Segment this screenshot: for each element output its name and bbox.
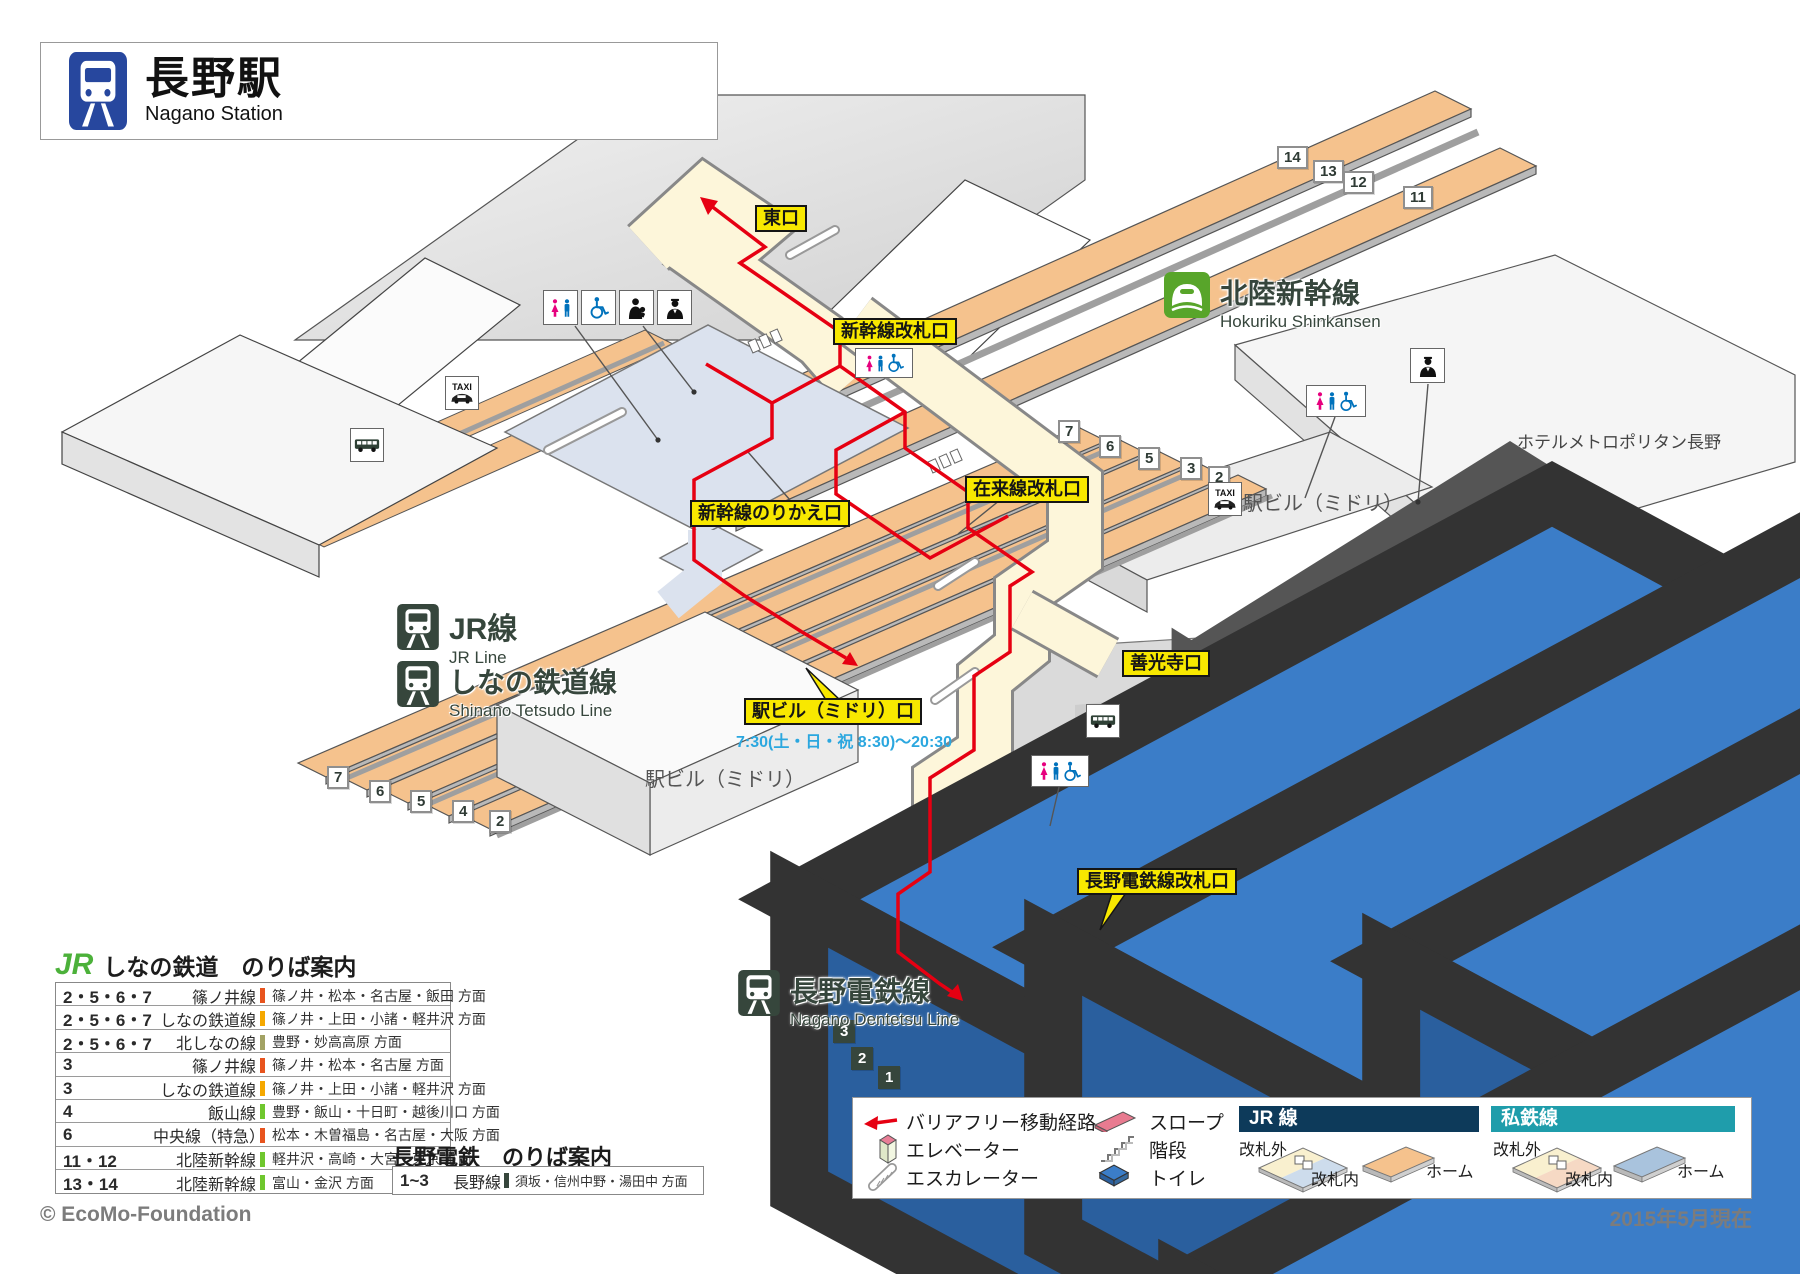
taxi-stand-icon-box: TAXI: [1208, 482, 1242, 516]
platform-badge: 5: [1138, 447, 1160, 470]
barrier-free-arrow-icon: [861, 1112, 901, 1132]
taxi-car-icon: [450, 392, 474, 404]
table-row: 13・14 北陸新幹線 富山・金沢 方面: [56, 1170, 450, 1192]
platform-badge: 4: [452, 800, 474, 823]
zenkoji-exit-label: 善光寺口: [1122, 650, 1210, 677]
slope-icon: [1093, 1108, 1137, 1132]
line-color-bar: [260, 1104, 265, 1119]
bus-stop-icon-box: [1086, 704, 1120, 738]
shinkansen-icon: [1164, 272, 1210, 323]
bus-icon: [1090, 713, 1116, 729]
line-color-bar: [260, 1035, 265, 1050]
platform-badge: 2: [489, 810, 511, 833]
platform-badge: 6: [369, 780, 391, 803]
train-icon: [738, 970, 780, 1021]
line-color-bar: [504, 1173, 509, 1188]
station-title: 長野駅: [145, 56, 283, 102]
line-color-bar: [260, 1058, 265, 1073]
platform-badge: 1: [878, 1066, 900, 1089]
legend-private-header: 私鉄線: [1491, 1106, 1735, 1132]
baby-care-icon-box: [619, 290, 654, 325]
table-row: 6 中央線（特急） 松本・木曽福島・名古屋・大阪 方面: [56, 1123, 450, 1146]
bus-icon: [354, 437, 380, 453]
legend-jr-home: ホーム: [1426, 1158, 1474, 1182]
taxi-car-icon: [1213, 498, 1237, 510]
restroom-icon-box: [543, 290, 578, 325]
table-row: 11・12 北陸新幹線 軽井沢・高崎・大宮・東京 方面: [56, 1147, 450, 1170]
taxi-stand-icon-box: TAXI: [445, 376, 479, 410]
wheelchair-icon: [1339, 391, 1357, 412]
ekibiru-hours: 7:30(土・日・祝 8:30)～20:30: [736, 728, 952, 752]
bus-stop-icon-box: [350, 428, 384, 462]
line-color-bar: [260, 1128, 265, 1143]
station-staff-icon-box: [657, 290, 692, 325]
platform-badge: 11: [1403, 186, 1433, 209]
legend-jr-header: JR 線: [1239, 1106, 1479, 1132]
table-row: 2・5・6・7 しなの鉄道線 篠ノ井・上田・小諸・軽井沢 方面: [56, 1006, 450, 1029]
platform-badge: 13: [1313, 160, 1344, 183]
baby-care-icon: [626, 297, 648, 319]
platform-badge: 12: [1343, 171, 1374, 194]
stairs-icon: [1099, 1134, 1135, 1162]
ekibiru-left-label: 駅ビル（ミドリ）: [645, 763, 805, 792]
wheelchair-icon: [887, 353, 904, 373]
wheelchair-icon-box: [581, 290, 616, 325]
legend-elevator-label: エレベーター: [906, 1136, 1020, 1163]
taxi-label: TAXI: [1215, 489, 1235, 498]
hotel-label: ホテルメトロポリタン長野: [1517, 428, 1721, 453]
male-icon: [1327, 391, 1337, 411]
nagano-station-floor-map: 長野駅 Nagano Station 東口 新幹線改札口 新幹線のりかえ口 在来…: [0, 0, 1800, 1274]
dentetsu-gate-label: 長野電鉄線改札口: [1077, 868, 1237, 895]
jr-line-label: JR線 JR Line: [397, 604, 517, 668]
title-box: 長野駅 Nagano Station: [40, 42, 718, 140]
platform-badge: 7: [327, 766, 349, 789]
female-icon: [1315, 391, 1325, 411]
conventional-gate-label: 在来線改札口: [965, 476, 1089, 503]
restroom-icon-box: [855, 348, 913, 378]
shinano-tetsudo-label: しなの鉄道線 Shinano Tetsudo Line: [397, 661, 617, 721]
ekibiru-exit-label: 駅ビル（ミドリ）口: [744, 698, 922, 725]
female-icon: [550, 298, 560, 318]
nagano-dentetsu-label: 長野電鉄線 Nagano Dentetsu Line: [738, 970, 959, 1030]
legend-private-home: ホーム: [1677, 1158, 1725, 1182]
station-subtitle: Nagano Station: [145, 103, 283, 126]
platform-badge: 5: [410, 790, 432, 813]
line-color-bar: [260, 1011, 265, 1026]
table-row: 4 飯山線 豊野・飯山・十日町・越後川口 方面: [56, 1100, 450, 1123]
table-row: 3 篠ノ井線 篠ノ井・松本・名古屋 方面: [56, 1053, 450, 1076]
legend-private-inside: 改札内: [1565, 1166, 1613, 1190]
train-icon: [397, 604, 439, 655]
legend-jr-inside: 改札内: [1311, 1166, 1359, 1190]
hokuriku-shinkansen-label: 北陸新幹線 Hokuriku Shinkansen: [1164, 272, 1381, 332]
platform-badge: 14: [1277, 146, 1308, 169]
station-staff-icon-box: [1410, 348, 1445, 383]
dentetsu-platform-table: 1~3 長野線 須坂・信州中野・湯田中 方面: [392, 1166, 704, 1195]
platform-badge: 7: [1058, 420, 1080, 443]
male-icon: [1051, 761, 1061, 781]
female-icon: [1039, 761, 1049, 781]
wheelchair-icon: [589, 296, 609, 320]
platform-badge: 2: [851, 1047, 873, 1070]
line-color-bar: [260, 1175, 265, 1190]
line-color-bar: [260, 1152, 265, 1167]
male-icon: [876, 354, 885, 373]
legend-box: バリアフリー移動経路 エレベーター エスカレーター スロープ 階段 トイレ JR…: [852, 1097, 1752, 1199]
table-row: 1~3 長野線 須坂・信州中野・湯田中 方面: [393, 1167, 703, 1194]
legend-route-label: バリアフリー移動経路: [906, 1108, 1096, 1135]
table-row: 3 しなの鉄道線 篠ノ井・上田・小諸・軽井沢 方面: [56, 1077, 450, 1100]
staff-icon: [664, 297, 686, 319]
train-icon: [397, 661, 439, 712]
male-icon: [562, 298, 572, 318]
restroom-icon-box: [1306, 385, 1366, 417]
shinano-table-title: JR しなの鉄道 のりば案内: [55, 948, 356, 982]
staff-icon: [1417, 355, 1439, 377]
table-row: 2・5・6・7 篠ノ井線 篠ノ井・松本・名古屋・飯田 方面: [56, 983, 450, 1006]
escalator-icon: [865, 1160, 901, 1192]
jr-logo: JR: [55, 950, 93, 980]
train-icon: [69, 52, 127, 130]
table-row: 2・5・6・7 北しなの線 豊野・妙高高原 方面: [56, 1030, 450, 1053]
platform-badge: 3: [1180, 457, 1202, 480]
ekibiru-right-label: 駅ビル（ミドリ）: [1243, 487, 1403, 516]
shinkansen-transfer-label: 新幹線のりかえ口: [690, 500, 850, 527]
legend-escalator-label: エスカレーター: [906, 1164, 1039, 1191]
legend-stairs-label: 階段: [1149, 1136, 1187, 1163]
shinkansen-gate-label: 新幹線改札口: [833, 318, 957, 345]
female-icon: [865, 354, 874, 373]
line-color-bar: [260, 1081, 265, 1096]
east-exit-label: 東口: [755, 205, 807, 232]
copyright: © EcoMo-Foundation: [40, 1203, 251, 1227]
taxi-label: TAXI: [452, 383, 472, 392]
line-color-bar: [260, 988, 265, 1003]
wheelchair-icon: [1063, 761, 1081, 782]
legend-slope-label: スロープ: [1149, 1108, 1224, 1135]
restroom-icon-box: [1031, 755, 1089, 787]
platform-badge: 6: [1099, 435, 1121, 458]
map-date: 2015年5月現在: [1610, 1203, 1752, 1233]
legend-toilet-label: トイレ: [1149, 1164, 1206, 1191]
toilet-icon: [1097, 1164, 1131, 1188]
